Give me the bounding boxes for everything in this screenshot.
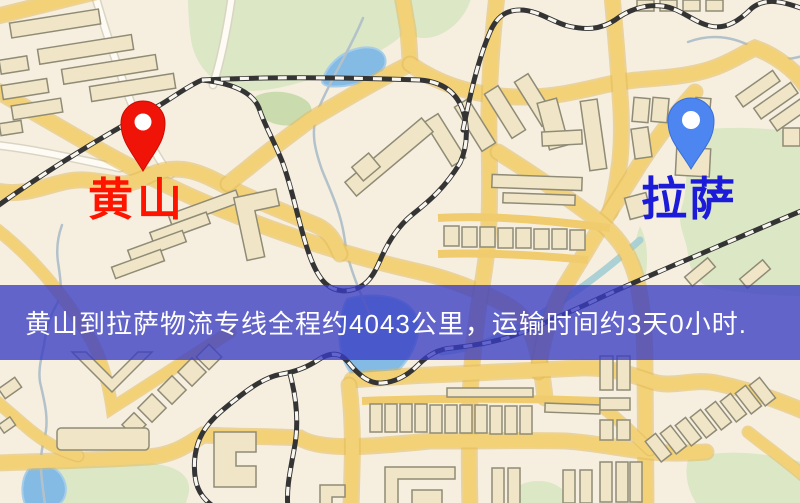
- map-screenshot: 黄山 拉萨 黄山到拉萨物流专线全程约4043公里，运输时间约3天0小时.: [0, 0, 800, 503]
- origin-label: 黄山: [88, 178, 186, 223]
- map-canvas[interactable]: [0, 0, 800, 503]
- route-info-text: 黄山到拉萨物流专线全程约4043公里，运输时间约3天0小时.: [0, 304, 747, 341]
- destination-label: 拉萨: [641, 176, 737, 222]
- route-info-banner: 黄山到拉萨物流专线全程约4043公里，运输时间约3天0小时.: [0, 285, 800, 360]
